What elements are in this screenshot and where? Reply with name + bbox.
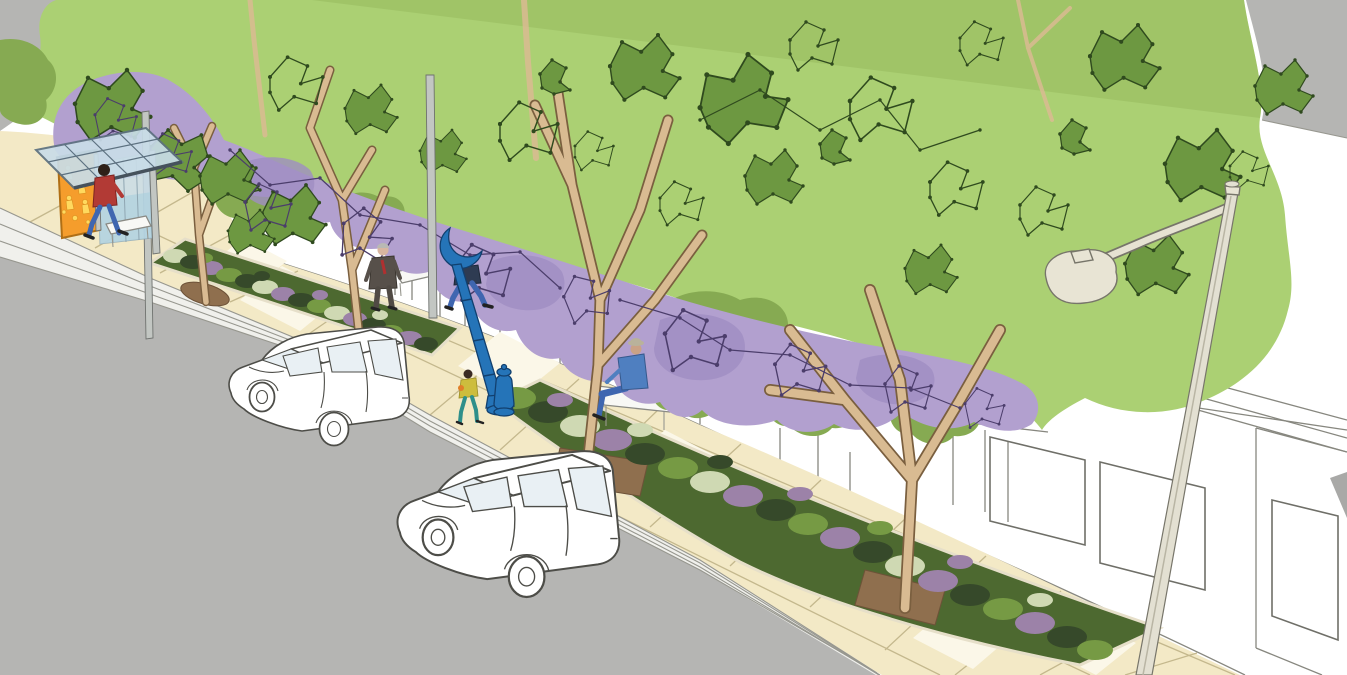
lamp-head-box bbox=[1071, 249, 1093, 263]
head bbox=[98, 164, 110, 176]
jacket bbox=[93, 175, 117, 207]
streetscape-rendering bbox=[0, 0, 1347, 675]
lamp-pole-tip bbox=[1225, 181, 1239, 187]
rear-wheel bbox=[320, 413, 349, 446]
fire-hydrant bbox=[494, 365, 514, 417]
front-wheel bbox=[250, 383, 275, 412]
streetscape-svg bbox=[0, 0, 1347, 675]
child-bag bbox=[458, 385, 464, 391]
blue-shirt bbox=[618, 354, 648, 390]
